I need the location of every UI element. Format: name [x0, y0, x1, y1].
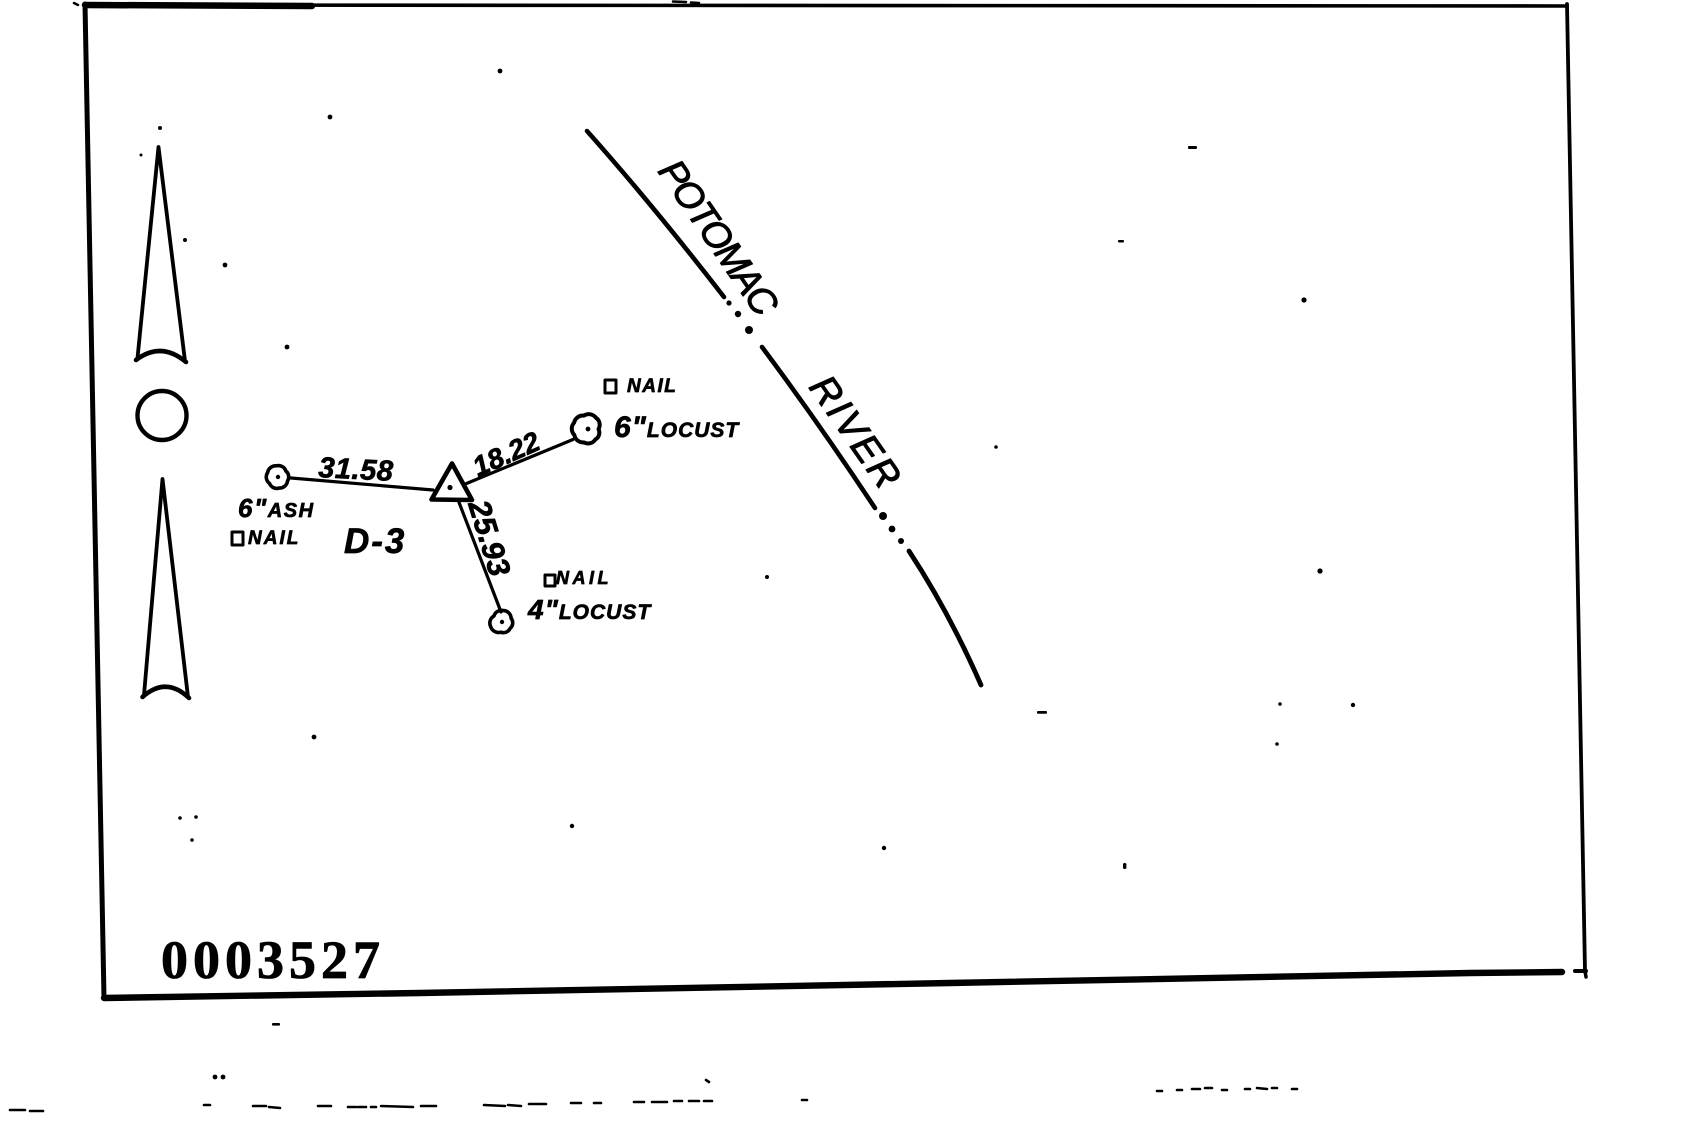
svg-text:6"LOCUST: 6"LOCUST — [614, 411, 740, 444]
svg-text:NAIL: NAIL — [556, 568, 612, 588]
svg-text:NAIL: NAIL — [627, 376, 677, 397]
svg-text:4"LOCUST: 4"LOCUST — [527, 594, 652, 625]
svg-text:25.93: 25.93 — [461, 495, 517, 580]
svg-text:18.22: 18.22 — [468, 425, 545, 482]
svg-text:0003527: 0003527 — [161, 930, 385, 990]
svg-text:D-3: D-3 — [344, 522, 406, 561]
svg-text:6"ASH: 6"ASH — [238, 493, 315, 523]
svg-text:31.58: 31.58 — [318, 452, 395, 488]
svg-text:NAIL: NAIL — [248, 528, 300, 549]
svg-text:POTOMAC: POTOMAC — [650, 152, 787, 324]
